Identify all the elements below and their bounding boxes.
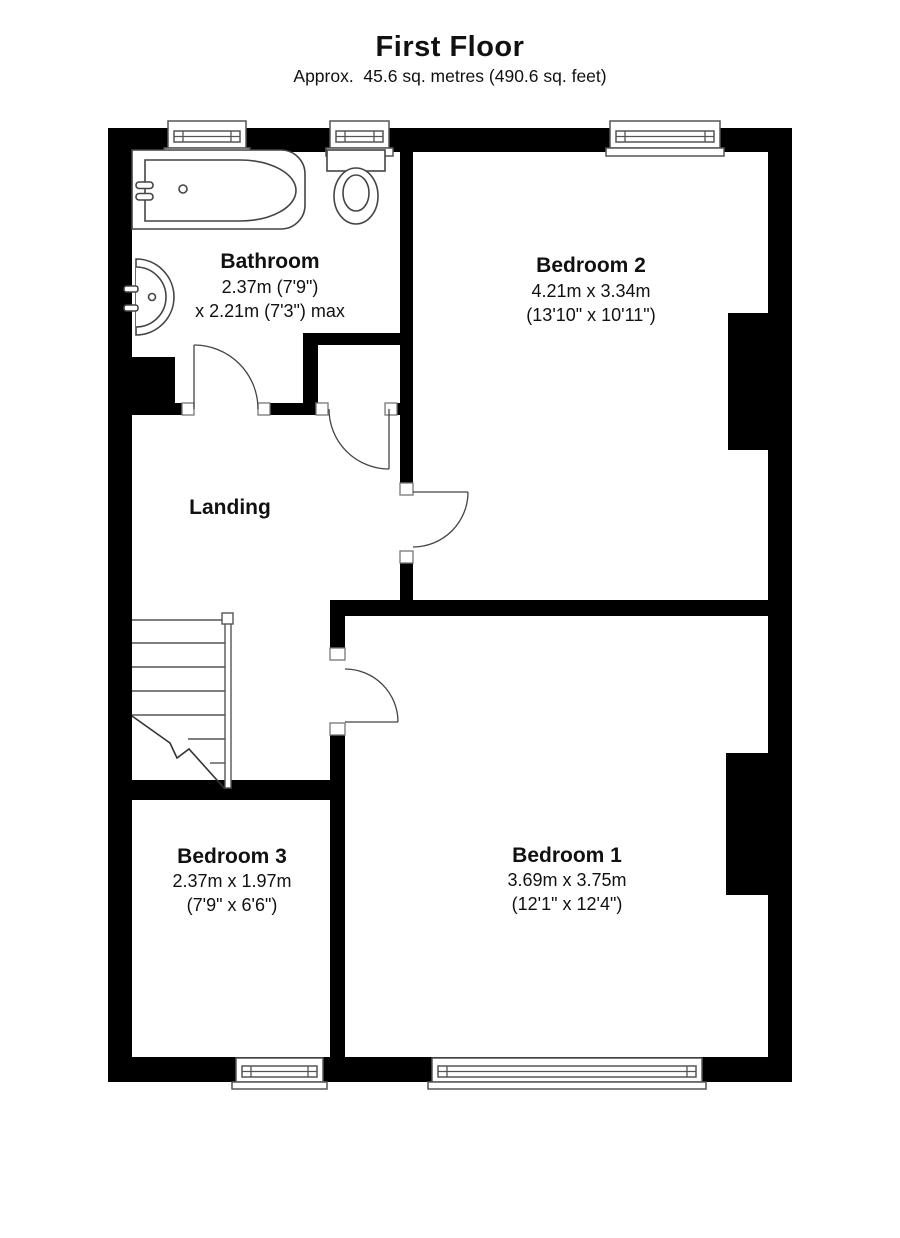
window-bedroom2 (606, 121, 724, 156)
stairs (132, 613, 233, 789)
bedroom3-dim-1: 2.37m x 1.97m (172, 871, 291, 891)
stairs-stringer (225, 615, 231, 788)
jamb-bathroom-door-right (258, 403, 270, 415)
bath-tap-2 (136, 194, 153, 201)
window-bedroom3 (232, 1058, 327, 1089)
jamb-cupboard-door-left (316, 403, 328, 415)
chimney-breast-bedroom2 (728, 313, 768, 450)
jamb-bedroom1-door-top (330, 648, 345, 660)
bedroom2-label: Bedroom 2 (536, 254, 646, 277)
wall-bedroom2-bedroom1-divider (330, 600, 768, 616)
bath-drain (179, 185, 187, 193)
wall-exterior-left (108, 128, 132, 1082)
bathroom-label: Bathroom (220, 250, 319, 273)
bedroom3-dim-2: (7'9" x 6'6") (187, 895, 278, 915)
jamb-bedroom2-door-bottom (400, 551, 413, 563)
door-bedroom1 (345, 669, 398, 722)
bath-tap-1 (136, 182, 153, 189)
wall-bedroom1-west-upper (330, 616, 345, 648)
wall-cupboard-top (303, 333, 413, 345)
wall-landing-bedroom2-upper (400, 152, 413, 483)
door-bedroom2 (413, 492, 468, 547)
landing-label: Landing (189, 496, 271, 519)
bathroom-dim-1: 2.37m (7'9") (222, 277, 319, 297)
window-bedroom1 (428, 1058, 706, 1089)
door-jambs (182, 403, 413, 735)
bathroom-dim-2: x 2.21m (7'3") max (195, 301, 345, 321)
wall-bathroom-stub (132, 357, 175, 403)
toilet (327, 150, 385, 224)
basin-tap-2 (124, 305, 138, 311)
jamb-bathroom-door-left (182, 403, 194, 415)
bedroom1-dim-2: (12'1" x 12'4") (512, 894, 623, 914)
wall-stairs-bedroom3-divider (132, 780, 345, 800)
room-labels: Bathroom 2.37m (7'9") x 2.21m (7'3") max… (172, 250, 655, 915)
toilet-bowl-inner (343, 175, 369, 211)
wall-exterior-right (768, 128, 792, 1082)
door-cupboard (329, 409, 389, 469)
bathtub (132, 150, 305, 229)
wall-bathroom-south-left (132, 403, 182, 415)
doors (194, 345, 468, 722)
basin-drain (149, 294, 156, 301)
bedroom1-dim-1: 3.69m x 3.75m (507, 870, 626, 890)
chimney-breast-bedroom1 (726, 753, 768, 895)
door-bathroom (194, 345, 258, 409)
jamb-bedroom1-door-bottom (330, 723, 345, 735)
wall-bathroom-south-mid (270, 403, 303, 415)
jamb-bedroom2-door-top (400, 483, 413, 495)
bedroom1-label: Bedroom 1 (512, 844, 622, 867)
bedroom2-dim-2: (13'10" x 10'11") (526, 305, 655, 325)
jamb-cupboard-door-right (385, 403, 397, 415)
floorplan-drawing: Bathroom 2.37m (7'9") x 2.21m (7'3") max… (0, 0, 900, 1238)
floorplan-page: First Floor Approx. 45.6 sq. metres (490… (0, 0, 900, 1238)
bedroom2-dim-1: 4.21m x 3.34m (531, 281, 650, 301)
stairs-newel-post (222, 613, 233, 624)
bedroom3-label: Bedroom 3 (177, 845, 287, 868)
stairs-break-line (132, 716, 225, 789)
basin-tap-1 (124, 286, 138, 292)
